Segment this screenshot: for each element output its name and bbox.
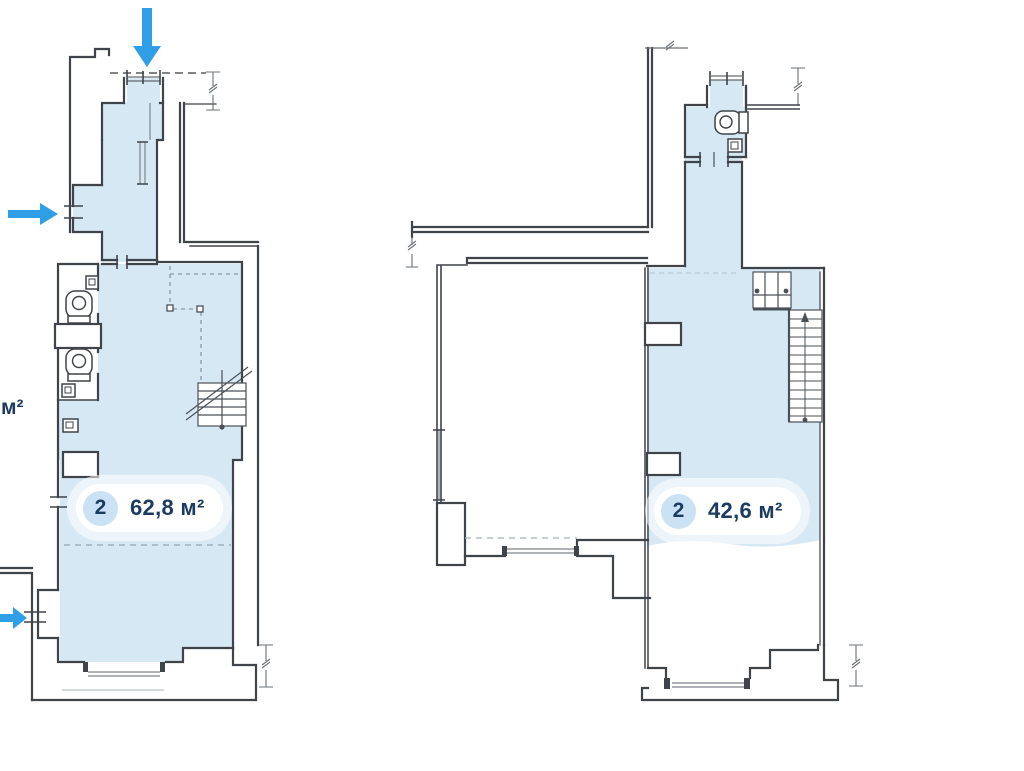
sink-icon [86, 276, 98, 289]
entrance-arrow-down-icon [133, 8, 161, 67]
wall-pier [647, 453, 680, 475]
floor-plan-left [0, 49, 273, 700]
entrance-arrow-right-upper-icon [8, 203, 58, 225]
unit-badge-right[interactable]: 2 42,6 м² [654, 487, 801, 535]
sink-icon [62, 384, 75, 397]
wall-pier [645, 323, 681, 345]
wall-pier [63, 452, 98, 477]
wall-fixture-box [63, 419, 78, 432]
floor-plans-canvas [0, 0, 1024, 771]
toilet-icon [715, 111, 748, 134]
toilet-icon [66, 291, 92, 323]
floor-plan-page: 2 62,8 м² 2 42,6 м² м² [0, 0, 1024, 771]
unit-badge-left[interactable]: 2 62,8 м² [76, 484, 223, 532]
partial-area-label: м² [1, 396, 24, 420]
unit-rooms-count: 2 [661, 494, 696, 529]
unit-rooms-count: 2 [83, 491, 118, 526]
unit-area-label: 42,6 м² [708, 498, 783, 524]
toilet-icon [66, 349, 92, 381]
entrance-arrow-right-lower-icon [0, 607, 27, 629]
floor-plan-right [406, 41, 863, 700]
sink-icon [728, 139, 742, 152]
window [62, 662, 165, 690]
unit-area-label: 62,8 м² [130, 495, 205, 521]
